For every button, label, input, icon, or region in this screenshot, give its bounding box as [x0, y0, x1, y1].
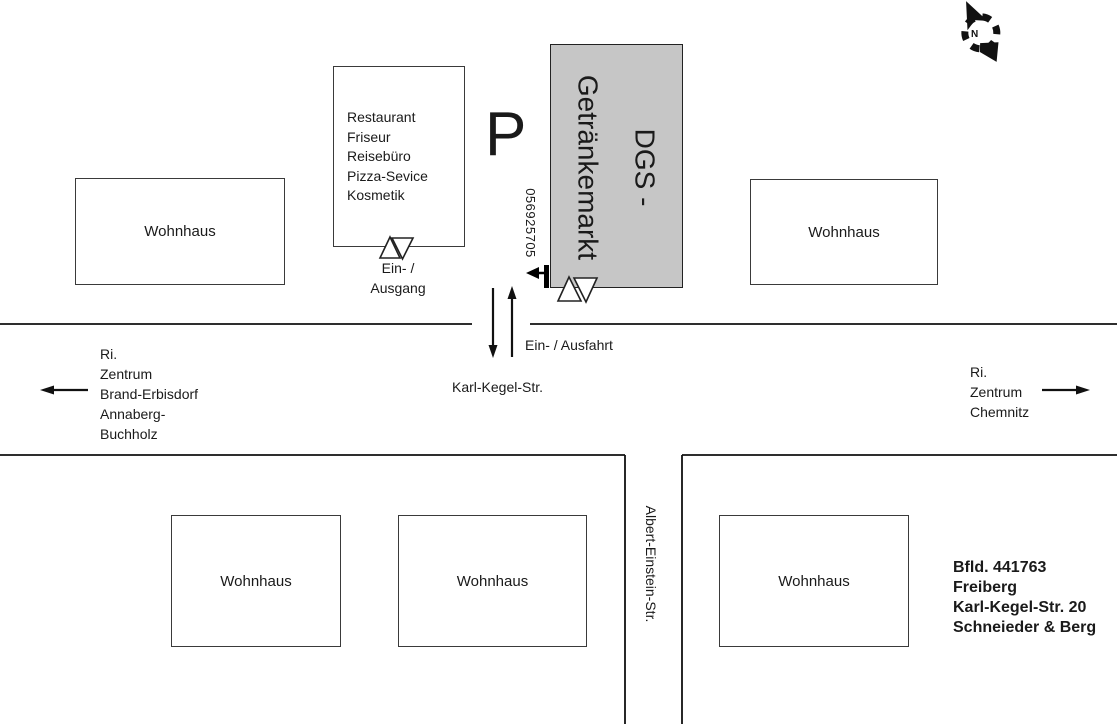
services-building-label: Restaurant Friseur Reisebüro Pizza-Sevic…	[347, 108, 428, 206]
driveway-arrow-up-icon	[508, 286, 517, 357]
direction-arrow-east-icon	[1042, 386, 1090, 395]
wohnhaus-label: Wohnhaus	[808, 224, 879, 241]
driveway-label: Ein- / Ausfahrt	[525, 335, 613, 355]
services-entrance-label: Ein- / Ausgang	[358, 259, 438, 298]
dgs-entrance-bar-icon	[544, 265, 549, 288]
dgs-building: DGS - Getränkemarkt	[550, 44, 683, 288]
dgs-number-label: 056925705	[522, 178, 538, 268]
address-label: Bfld. 441763 Freiberg Karl-Kegel-Str. 20…	[953, 558, 1096, 638]
north-compass-icon: N	[952, 0, 1010, 69]
wohnhaus-box-northeast: Wohnhaus	[750, 179, 938, 285]
wohnhaus-box-south-2: Wohnhaus	[398, 515, 587, 647]
dgs-building-label: DGS - Getränkemarkt	[551, 46, 684, 290]
wohnhaus-label: Wohnhaus	[144, 223, 215, 240]
street-label-karl-kegel: Karl-Kegel-Str.	[452, 377, 543, 397]
direction-arrow-west-icon	[40, 386, 88, 395]
wohnhaus-box-south-1: Wohnhaus	[171, 515, 341, 647]
dgs-entrance-arrow-icon	[526, 267, 545, 279]
driveway-arrow-down-icon	[489, 288, 498, 358]
services-building: Restaurant Friseur Reisebüro Pizza-Sevic…	[333, 66, 465, 247]
wohnhaus-box-south-3: Wohnhaus	[719, 515, 909, 647]
parking-symbol: P	[485, 104, 526, 166]
direction-east-label: Ri. Zentrum Chemnitz	[970, 362, 1029, 422]
wohnhaus-box-northwest: Wohnhaus	[75, 178, 285, 285]
street-label-albert-einstein: Albert-Einstein-Str.	[643, 489, 659, 639]
direction-west-label: Ri. Zentrum Brand-Erbisdorf Annaberg- Bu…	[100, 344, 198, 444]
site-map: Wohnhaus Wohnhaus Wohnhaus Wohnhaus Wohn…	[0, 0, 1117, 724]
wohnhaus-label: Wohnhaus	[778, 573, 849, 590]
compass-north-label: N	[971, 29, 978, 40]
wohnhaus-label: Wohnhaus	[220, 573, 291, 590]
wohnhaus-label: Wohnhaus	[457, 573, 528, 590]
